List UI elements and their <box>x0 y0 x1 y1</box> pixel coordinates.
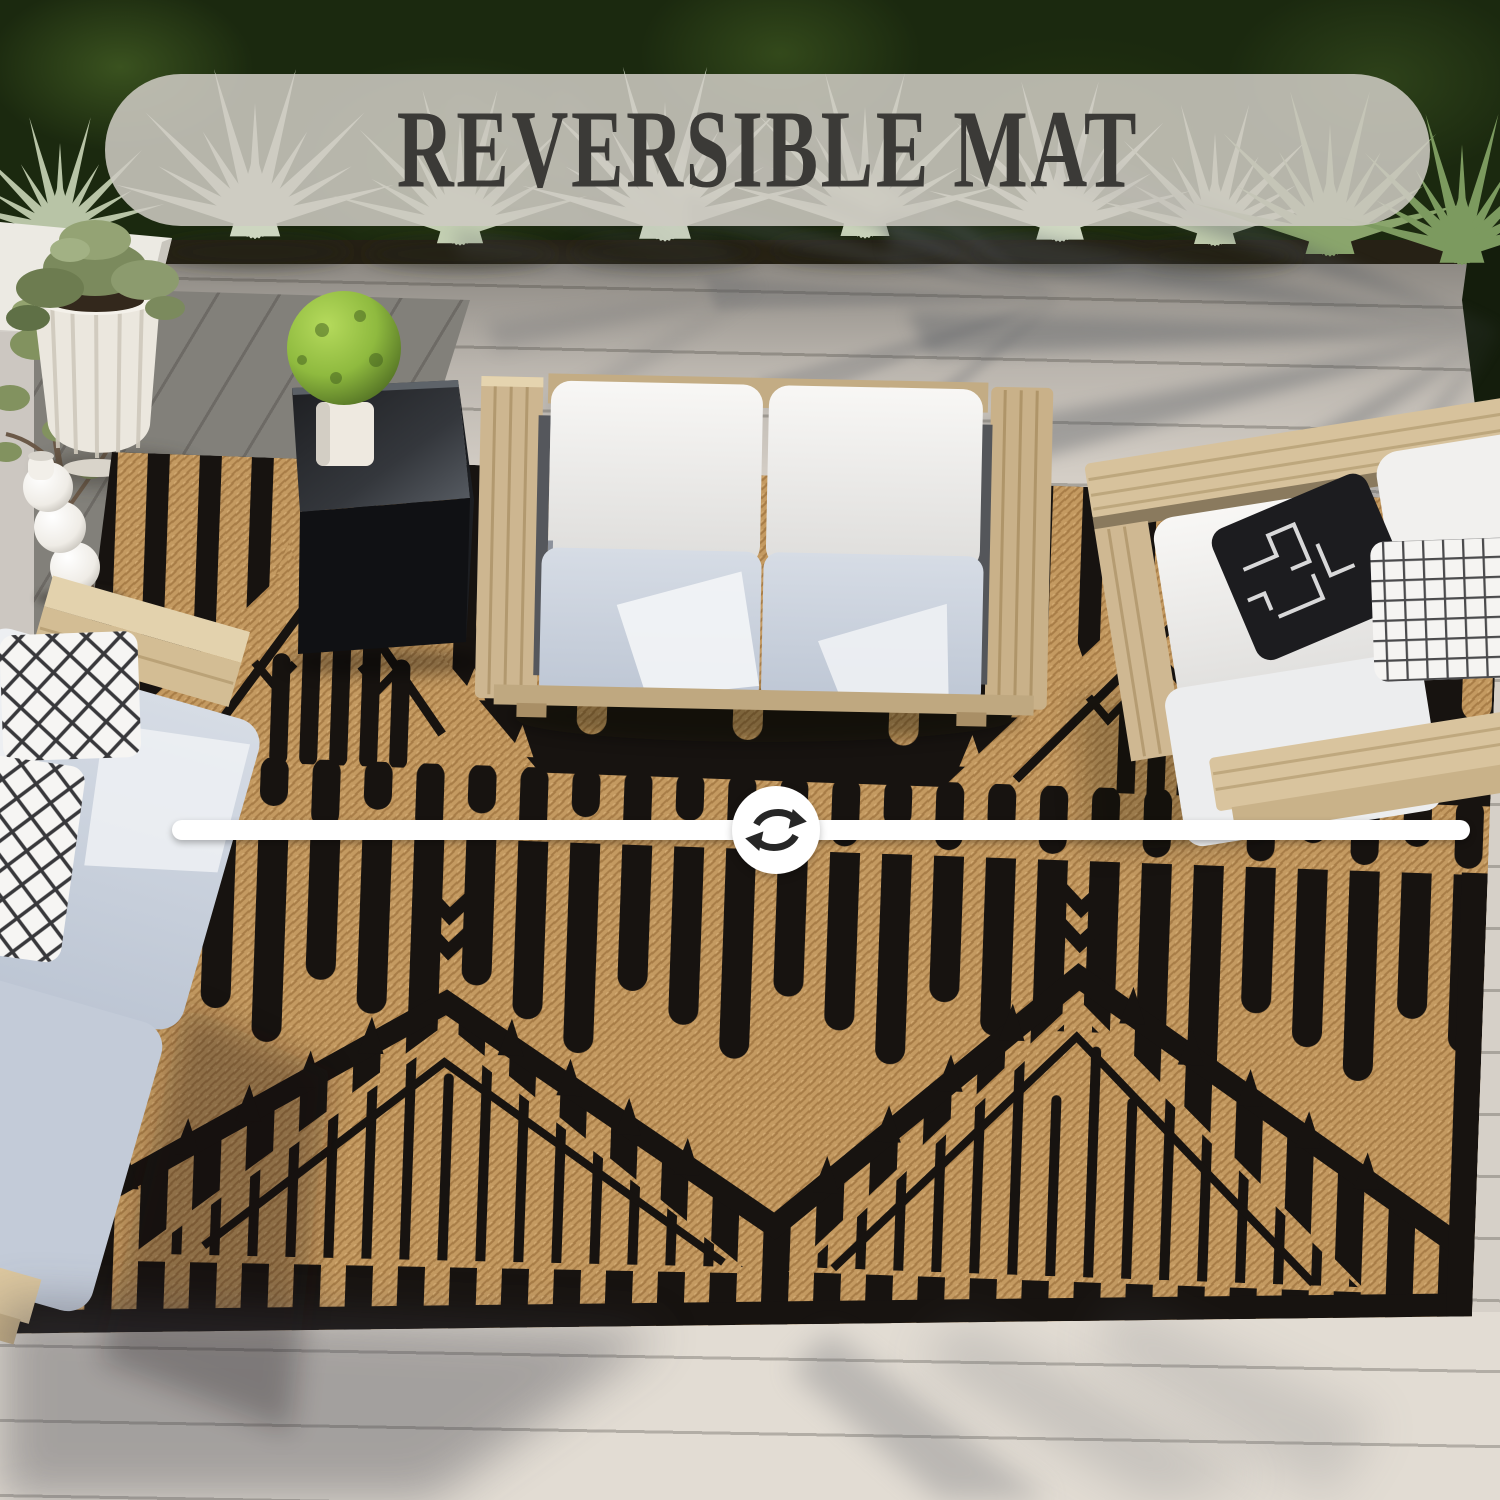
reverse-arrows-icon <box>741 795 811 865</box>
flip-badge <box>732 786 820 874</box>
center-sofa <box>474 372 1053 728</box>
banner: REVERSIBLE MAT <box>105 74 1430 226</box>
flip-divider-bar <box>172 820 1470 840</box>
back-cushion <box>548 380 764 566</box>
back-cushion <box>766 385 984 571</box>
deck-shadow-bottom-left <box>0 1300 665 1500</box>
palm-shadow-bottom <box>790 1300 1380 1500</box>
patio-scene: REVERSIBLE MAT <box>0 0 1500 1500</box>
side-table <box>285 380 485 676</box>
banner-title: REVERSIBLE MAT <box>396 86 1138 213</box>
grid-pillow <box>1370 537 1500 682</box>
checkered-pillow <box>0 631 141 762</box>
